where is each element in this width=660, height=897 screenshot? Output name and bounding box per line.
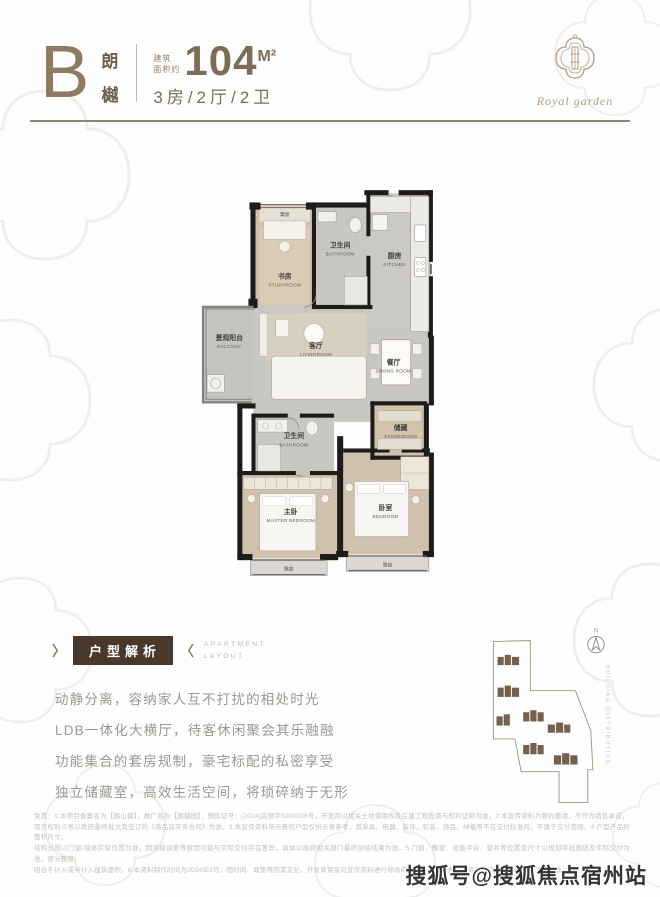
header-rule — [30, 120, 630, 122]
brand-logo: Royal garden — [530, 34, 620, 109]
section-subtitle: APARTMENT LAYOUT — [204, 639, 266, 661]
room-label-bath-mid-en: BATHROOM — [279, 442, 308, 447]
analysis-line: 独立储藏室，高效生活空间，将琐碎纳于无形 — [55, 777, 400, 808]
royal-garden-emblem-icon — [550, 34, 600, 86]
analysis-line: 功能集合的套房规制，豪宅标配的私密享受 — [55, 746, 400, 777]
analysis-line: 动静分离，容纳家人互不打扰的相处时光 — [55, 684, 400, 715]
area-unit: M² — [257, 48, 276, 66]
room-label-balcony-en: BALCONY — [217, 344, 241, 349]
unit-name-char-2: 樾 — [101, 81, 118, 106]
room-label-living-en: LIVINGROOM — [300, 352, 333, 357]
site-plan-drawing: N BUILDING DISTRIBUTION — [462, 620, 652, 825]
room-label-kitchen-en: KITCHEN — [383, 262, 405, 267]
analysis-paragraph: 动静分离，容纳家人互不打扰的相处时光 LDB一体化大横厅，待客休闲聚会其乐融融 … — [55, 684, 400, 808]
site-plan: N BUILDING DISTRIBUTION — [462, 620, 652, 825]
brand-name: Royal garden — [530, 94, 620, 109]
poster-page: B 朗 樾 建筑 面积约 104 M² 3房/2厅/2卫 — [0, 0, 660, 897]
site-buildings — [497, 655, 578, 765]
room-layout-text: 3房/2厅/2卫 — [153, 83, 276, 108]
room-label-bedroom-en: BEDROOM — [373, 514, 399, 519]
compass-icon: N — [588, 627, 604, 653]
bay-label-top: 飘窗 — [280, 211, 290, 218]
area-prefix: 建筑 面积约 — [153, 54, 180, 76]
room-label-bedroom-zh: 卧室 — [379, 503, 393, 512]
room-label-bath-top-en: BATHROOM — [326, 252, 355, 257]
building-distribution-label: BUILDING DISTRIBUTION — [604, 665, 610, 765]
room-label-balcony-zh: 景观阳台 — [216, 333, 243, 342]
room-label-study-en: STUDYROOM — [268, 282, 301, 287]
room-label-study-zh: 书房 — [278, 271, 292, 280]
floorplan: 飘窗 书房 STUDYROOM 卫生间 BATHROOM 厨房 KITCHEN … — [193, 184, 445, 594]
compass-north-label: N — [594, 627, 598, 634]
section-title: 户型解析 — [73, 636, 173, 665]
room-label-master-en: MASTER BEDROOM — [266, 518, 315, 523]
header-divider — [136, 44, 137, 102]
room-label-kitchen-zh: 厨房 — [388, 251, 402, 260]
analysis-line: LDB一体化大横厅，待客休闲聚会其乐融融 — [55, 715, 400, 746]
room-label-dining-zh: 餐厅 — [386, 357, 401, 366]
unit-name-char-1: 朗 — [101, 47, 118, 72]
room-label-dining-en: DINING ROOM — [376, 369, 411, 374]
sohu-watermark: 搜狐号@搜狐焦点宿州站 — [406, 860, 647, 890]
room-label-storeroom-en: STOREROOM — [384, 434, 417, 439]
room-label-living-zh: 客厅 — [308, 341, 323, 350]
room-label-master-zh: 主卧 — [284, 507, 298, 516]
bay-label-bottom-left: 飘窗 — [284, 565, 294, 572]
unit-type-letter: B — [40, 38, 89, 106]
floorplan-drawing: 飘窗 书房 STUDYROOM 卫生间 BATHROOM 厨房 KITCHEN … — [193, 184, 445, 594]
unit-type-name: 朗 樾 — [101, 47, 118, 106]
area-value: 104 — [184, 40, 257, 82]
room-label-storeroom-zh: 储藏 — [393, 423, 408, 432]
angle-left-icon: 〉 — [52, 641, 66, 661]
room-label-bath-top-zh: 卫生间 — [330, 240, 351, 249]
room-label-bath-mid-zh: 卫生间 — [284, 431, 305, 440]
header: B 朗 樾 建筑 面积约 104 M² 3房/2厅/2卫 — [40, 38, 276, 108]
disclaimer-line: 免责：1.本项目备案名为【朗山樾】，推广名为【朗樾园】，预售证号：(2024)房… — [34, 812, 630, 823]
disclaimer-line: 双方权利义务以政府最终批文及签订的《商品房买卖合同》为准。3.本宣传资料所示意的… — [34, 823, 630, 844]
angle-right-icon: 〈 — [180, 641, 194, 661]
section-header: 〉 户型解析 〈 APARTMENT LAYOUT — [52, 636, 266, 665]
bay-label-bottom-right: 飘窗 — [383, 561, 393, 568]
area-block: 建筑 面积约 104 M² 3房/2厅/2卫 — [153, 40, 276, 108]
